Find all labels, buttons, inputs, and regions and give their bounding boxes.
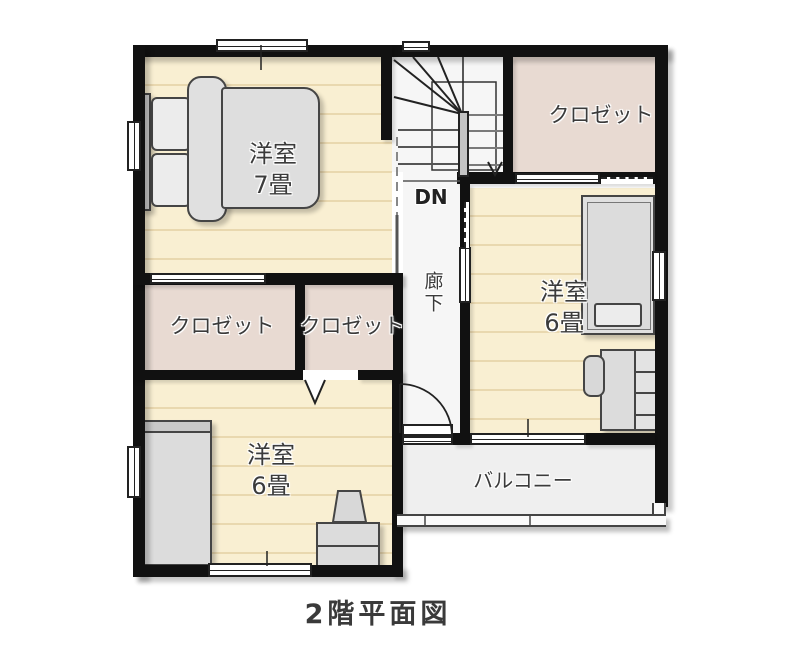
closet-bifold-door (305, 380, 325, 403)
bedroom7-label: 洋室 7畳 (249, 139, 297, 201)
chair-bottom-room (333, 491, 366, 522)
chair-right-room (584, 356, 604, 396)
bedroom6-bottom-label: 洋室 6畳 (247, 440, 295, 502)
closet-mid-left-label: クロゼット (170, 310, 275, 340)
closet-top-right-label: クロゼット (549, 99, 654, 129)
bedroom6-right-size: 6畳 (540, 308, 588, 339)
stair-newel (459, 112, 468, 176)
hallway-label: 廊下 (420, 271, 447, 315)
balcony-door-arc (400, 384, 452, 436)
balcony-label: バルコニー (473, 465, 573, 494)
bedroom7-name: 洋室 (249, 139, 297, 170)
bedroom6-right-name: 洋室 (540, 277, 588, 308)
floor-plan: 洋室 7畳 クロゼット DN 廊下 洋室 6畳 クロゼット クロゼット 洋室 6… (0, 0, 801, 645)
plan-title: 2階平面図 (305, 592, 452, 631)
stairs-down-arrow-icon (488, 162, 502, 175)
bedroom6-bottom-size: 6畳 (247, 471, 295, 502)
bedroom6-bottom-name: 洋室 (247, 440, 295, 471)
stairs (394, 57, 503, 181)
bedroom6-right-label: 洋室 6畳 (540, 277, 588, 339)
closet-mid-right-label: クロゼット (300, 310, 405, 340)
bedroom7-size: 7畳 (249, 170, 297, 201)
stairs-down-label: DN (414, 185, 447, 209)
